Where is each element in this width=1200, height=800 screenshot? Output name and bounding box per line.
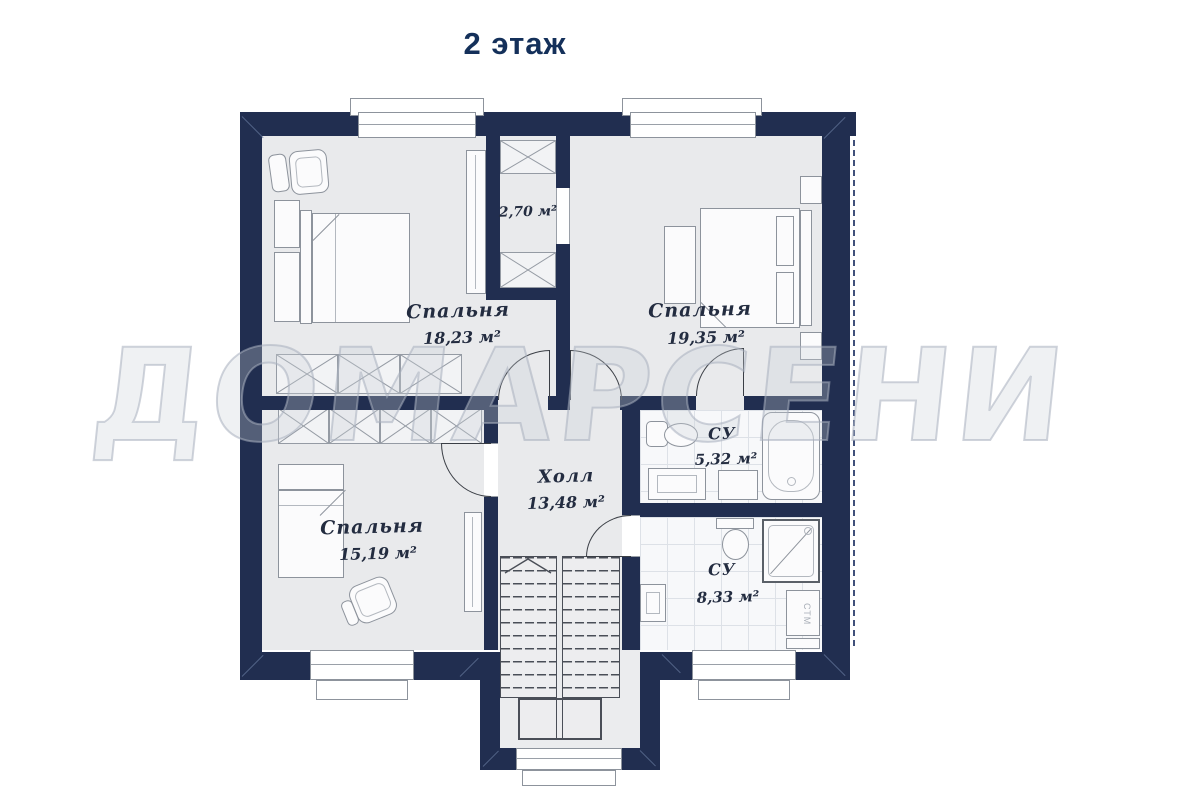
- wall-exterior-left: [240, 112, 262, 680]
- wardrobe-section: [276, 354, 338, 394]
- x-mark: [330, 409, 379, 443]
- window-sill-bottom-left: [316, 680, 408, 700]
- room-label-bedroom3: Спальня: [292, 514, 453, 540]
- bed-blanket-line: [279, 505, 343, 506]
- toilet-tank: [716, 518, 754, 529]
- wardrobe-section: [431, 408, 482, 444]
- bed-blanket-line: [335, 214, 336, 322]
- roof-line-dashed: [853, 140, 855, 646]
- x-mark: [279, 409, 328, 443]
- pillow: [776, 216, 794, 266]
- armchair-seat: [295, 156, 324, 188]
- window-sill-stair-bay: [522, 770, 616, 786]
- wall-bedrooms-divider: [556, 300, 570, 396]
- x-mark: [501, 253, 555, 287]
- closet-wardrobe: [500, 140, 556, 174]
- window-top-left: [358, 112, 476, 138]
- floor-plan-page: 2 этаж: [0, 0, 1200, 800]
- bathtub-drain: [787, 477, 796, 486]
- bed-headboard: [300, 210, 312, 324]
- tall-cabinet: [466, 150, 486, 294]
- sink-counter: [648, 468, 706, 500]
- window-mullion: [631, 124, 755, 125]
- window-mullion: [311, 664, 413, 665]
- wall-exterior-right: [822, 112, 850, 680]
- washer-shelf: [786, 638, 820, 649]
- x-mark: [501, 141, 555, 173]
- x-mark: [277, 355, 337, 393]
- window-stair-bay: [516, 748, 622, 770]
- tall-cabinet: [464, 512, 482, 612]
- toilet-bowl: [722, 529, 749, 560]
- window-mullion: [517, 758, 621, 759]
- x-mark: [401, 355, 461, 393]
- stair-flight-right: [562, 556, 620, 698]
- room-label-hall: Холл: [486, 464, 646, 489]
- nightstand: [800, 332, 822, 360]
- window-bottom-right: [692, 650, 796, 680]
- room-area-closet: 2,70 м²: [488, 203, 568, 221]
- dresser: [664, 226, 696, 304]
- cabinet-door-line: [472, 517, 473, 607]
- wardrobe-section: [329, 408, 380, 444]
- nightstand: [274, 200, 300, 248]
- cabinet-door-line: [475, 155, 476, 289]
- wall-bathrooms-divider: [640, 503, 822, 517]
- stair-flight-left: [500, 556, 557, 698]
- bed-headboard: [278, 464, 344, 490]
- wall-stair-bay-right: [640, 652, 660, 748]
- window-mullion: [693, 664, 795, 665]
- window-sill-bottom-right: [698, 680, 790, 700]
- bathroom-cabinet: [718, 470, 758, 500]
- stair-direction-arrow: [504, 558, 552, 574]
- wall-stair-bay-left: [480, 652, 500, 748]
- page-title: 2 этаж: [215, 26, 815, 62]
- room-label-bedroom2: Спальня: [620, 297, 781, 323]
- wall-exterior-top: [240, 112, 856, 136]
- bed-headboard: [800, 210, 812, 326]
- wall-hall-top-left: [262, 396, 498, 410]
- x-mark: [432, 409, 481, 443]
- x-mark: [339, 355, 399, 393]
- armchair: [288, 148, 330, 195]
- room-label-bedroom1: Спальня: [378, 298, 539, 324]
- chair-seat: [353, 581, 393, 619]
- sink-basin: [657, 475, 697, 493]
- window-bottom-left: [310, 650, 414, 680]
- wardrobe-section: [400, 354, 462, 394]
- wall-hall-top-stub: [548, 396, 570, 410]
- shower-head: [804, 527, 812, 535]
- nightstand: [800, 176, 822, 204]
- nightstand: [274, 252, 300, 322]
- x-mark: [381, 409, 430, 443]
- stair-center-rail: [556, 556, 563, 740]
- wardrobe-section: [278, 408, 329, 444]
- wall-bath1-top-left: [620, 396, 696, 410]
- window-mullion: [359, 124, 475, 125]
- wall-bath1-top-right: [744, 396, 822, 410]
- closet-wardrobe: [500, 252, 556, 288]
- window-top-right: [630, 112, 756, 138]
- wardrobe-section: [338, 354, 400, 394]
- wardrobe-section: [380, 408, 431, 444]
